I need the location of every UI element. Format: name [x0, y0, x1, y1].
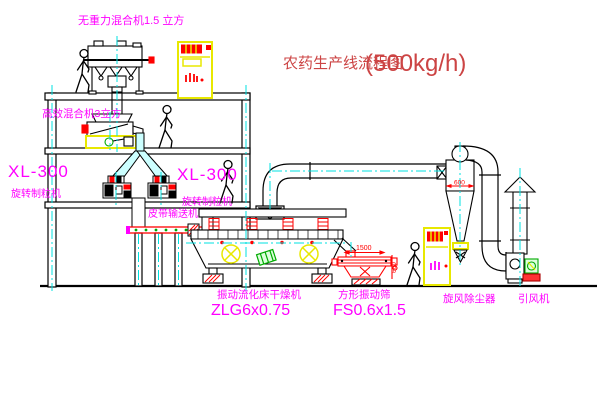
worker-figure-ground: [407, 243, 420, 286]
vibrating-screen: [332, 251, 397, 285]
label-granulator-center-model: XL-300: [177, 165, 238, 184]
label-screen-model: FS0.6x1.5: [333, 302, 406, 319]
rotary-granulator-unit-2: [148, 176, 176, 198]
spring-mounts: [209, 219, 328, 230]
label-granulator-left-name: 旋转制粒机: [11, 187, 61, 200]
dim-screen-length: 1500: [356, 245, 372, 252]
cad-process-flow-drawing: 无重力混合机1.5 立方 农药生产线流程图 (500kg/h) 高效混合机3立方…: [0, 0, 600, 403]
label-fan: 引风机: [518, 292, 550, 305]
label-high-efficiency-mixer: 高效混合机3立方: [42, 107, 121, 120]
label-gravity-free-mixer: 无重力混合机1.5 立方: [78, 13, 184, 27]
worker-figure-floor2: [159, 106, 172, 149]
drawing-surface: 无重力混合机1.5 立方 农药生产线流程图 (500kg/h) 高效混合机3立方…: [0, 0, 600, 403]
label-belt-conveyor: 皮带输送机: [148, 207, 198, 220]
dryer-feet: [203, 268, 332, 283]
fluid-bed-dryer: [191, 209, 346, 283]
label-granulator-left-model: XL-300: [8, 162, 69, 181]
label-dryer-name: 振动流化床干燥机: [217, 288, 301, 301]
label-granulator-center-name: 旋转制粒机: [182, 195, 232, 208]
gravity-free-mixer: [84, 41, 154, 117]
induced-draft-fan: [506, 253, 540, 283]
rotary-granulator-unit-1: [103, 176, 131, 198]
control-cabinet-screen: [424, 228, 450, 285]
control-cabinet-roof: [178, 42, 212, 98]
granulator-discharge-pipe: [132, 198, 145, 227]
label-dryer-model: ZLG6x0.75: [211, 302, 290, 319]
dim-cyclone-diameter: 600: [454, 180, 465, 187]
label-screen-name: 方形振动筛: [338, 288, 391, 301]
dim-screen-height: 600: [391, 262, 398, 273]
label-cyclone: 旋风除尘器: [443, 292, 496, 305]
page-title-capacity: (500kg/h): [365, 50, 466, 77]
fan-motor-icon: [525, 259, 538, 273]
worker-figure-roof: [76, 50, 89, 93]
